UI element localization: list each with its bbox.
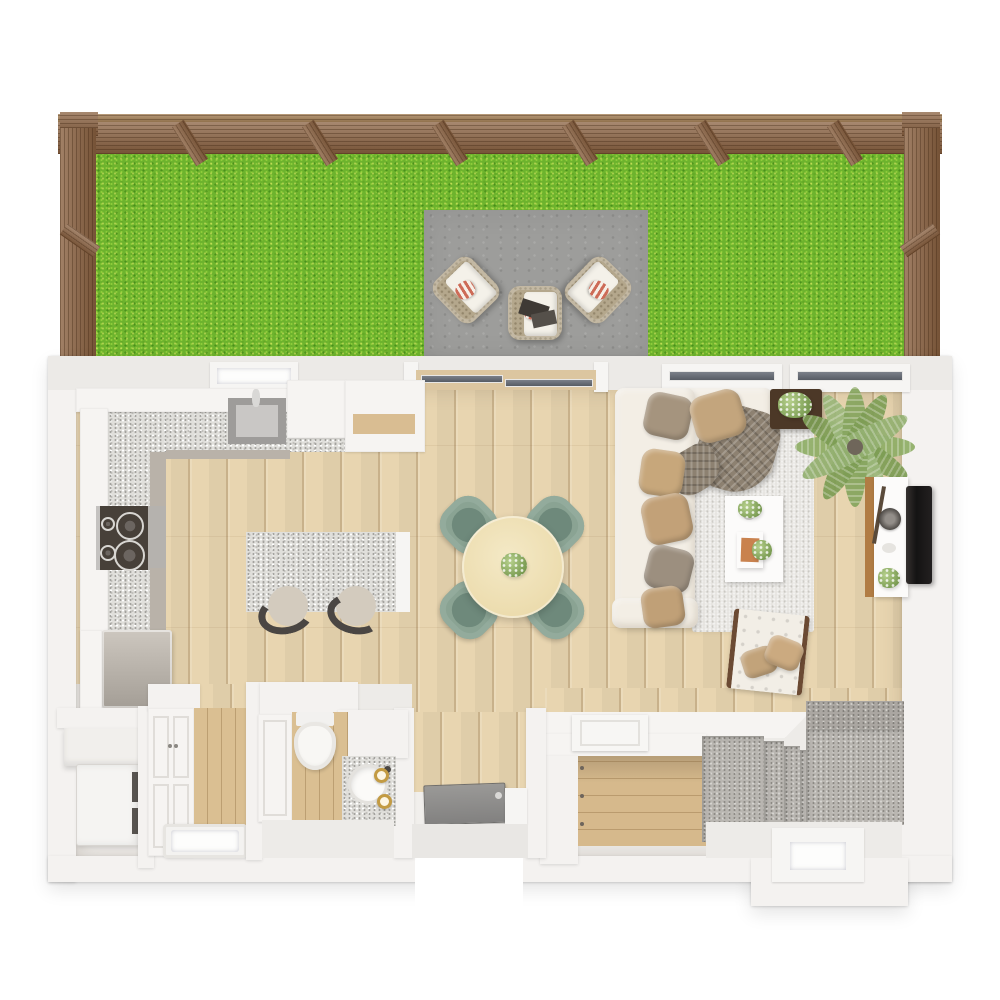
front-door-sidelight xyxy=(505,788,527,824)
slidingdoor-glass xyxy=(421,375,503,383)
flat-closet-door xyxy=(572,715,648,751)
laundry-shelf xyxy=(64,728,142,766)
wall-right xyxy=(902,356,952,882)
island-edge xyxy=(396,532,410,612)
wall-left xyxy=(48,356,76,882)
palm-pot xyxy=(847,439,863,455)
stair-tread xyxy=(784,746,800,831)
cabinet-panel xyxy=(263,720,287,816)
kitchen-faucet xyxy=(252,389,260,407)
bathroom-floor-white xyxy=(262,820,394,858)
kitchen-upper-cabinet-column xyxy=(287,380,347,438)
washing-machine xyxy=(76,764,140,846)
console-bowl xyxy=(882,543,896,553)
cabinet-knob xyxy=(174,744,178,748)
kitchen-cabinet-below-fridge xyxy=(80,630,102,710)
slidingdoor-glass xyxy=(505,379,593,387)
sofa-pillow xyxy=(639,584,686,629)
laundry-top-wall xyxy=(57,708,147,728)
burner xyxy=(114,540,145,571)
console-plant xyxy=(878,568,900,588)
burner xyxy=(116,512,144,540)
cabinet-knob xyxy=(168,744,172,748)
hinge-dot xyxy=(580,822,584,826)
kitchen-sink-basin xyxy=(236,405,278,437)
entry-right-wall xyxy=(526,708,546,858)
burner xyxy=(101,517,115,531)
oven-front xyxy=(148,506,166,570)
floor-entry-wood xyxy=(404,712,544,792)
pendant-light xyxy=(377,794,392,809)
pendant-light xyxy=(374,768,389,783)
entry-notch xyxy=(415,858,523,908)
landing-window-glass xyxy=(790,842,846,870)
stair-alcove-wood-wall xyxy=(578,756,706,846)
shower-room-top-wall xyxy=(148,684,200,710)
console-clock xyxy=(879,508,901,530)
kitchen-corner-niche xyxy=(353,414,415,434)
front-door xyxy=(423,783,506,826)
hinge-dot xyxy=(580,766,584,770)
entry-sill xyxy=(412,824,528,858)
cabinet-panel xyxy=(153,716,169,778)
hinge-dot xyxy=(580,794,584,798)
kitchen-window-glass xyxy=(217,368,291,384)
burner xyxy=(100,545,116,561)
scene-layer xyxy=(0,0,1000,1000)
wall-tv xyxy=(906,486,932,584)
sofa-pillow xyxy=(637,447,687,499)
coffee-table-sprigs xyxy=(738,500,762,518)
living-window-glass xyxy=(797,371,903,381)
vanity-half-wall xyxy=(338,710,408,758)
kitchen-cabinet-front-top xyxy=(166,450,290,459)
table-centerpiece-flowers xyxy=(501,553,527,577)
cooktop-trim xyxy=(96,506,100,570)
stair-granite-top-band xyxy=(806,701,904,731)
stair-granite-face xyxy=(806,729,904,825)
slidingdoor-jamb xyxy=(594,362,608,392)
shower-tray-basin xyxy=(171,830,239,852)
shower-room-wood-floor xyxy=(194,708,246,826)
coffee-table-plant xyxy=(752,540,772,560)
front-door-handle xyxy=(495,792,502,799)
kitchen-cabinet-front-left2 xyxy=(150,568,166,630)
living-window-glass xyxy=(669,371,775,381)
floorplan-render xyxy=(0,0,1000,1000)
